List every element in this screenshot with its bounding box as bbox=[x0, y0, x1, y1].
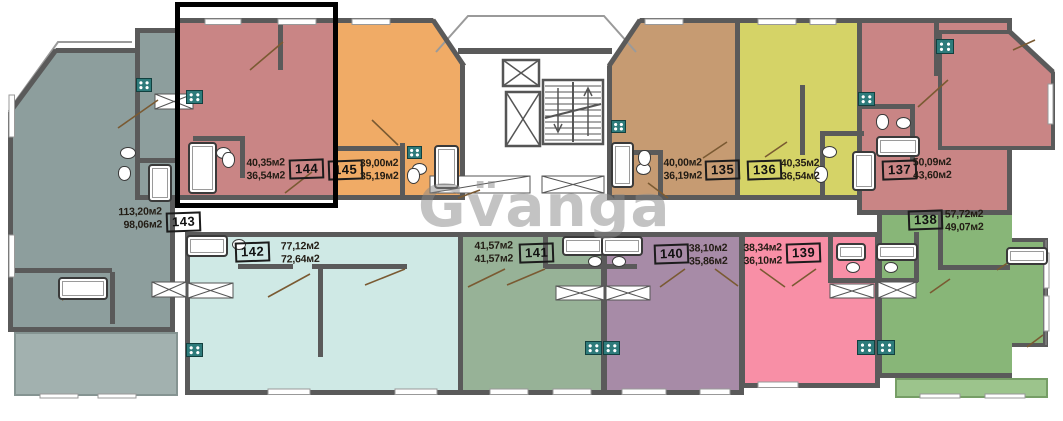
stove-icon bbox=[585, 341, 602, 355]
sink-icon bbox=[120, 147, 136, 159]
floor-plan: 143 144 145 135 136 137 142 141 140 139 … bbox=[0, 0, 1063, 421]
bathtub-icon bbox=[186, 235, 228, 257]
partition bbox=[333, 146, 403, 151]
partition bbox=[10, 268, 112, 273]
unit-label-143: 113,20м2 98,06м2 bbox=[98, 205, 162, 232]
unit-label-145: 39,00м2 35,19м2 bbox=[360, 156, 424, 183]
stove-icon bbox=[936, 39, 954, 54]
elevator-shafts bbox=[503, 60, 540, 146]
unit-stamp-140: 140 bbox=[654, 243, 690, 265]
staircase bbox=[543, 80, 603, 144]
area-total: 113,20м2 bbox=[98, 205, 162, 219]
bathtub-icon bbox=[876, 243, 918, 261]
area-total: 41,57м2 bbox=[449, 239, 513, 253]
bathtub-icon bbox=[1006, 247, 1048, 265]
unit-label-136: 40,35м2 36,54м2 bbox=[781, 156, 845, 183]
unit-stamp-138: 138 bbox=[908, 209, 944, 231]
area-total: 39,00м2 bbox=[360, 156, 424, 170]
unit-label-139: 38,34м2 36,10м2 bbox=[718, 241, 782, 268]
unit-138-area bbox=[877, 210, 1048, 378]
bathtub-icon bbox=[876, 136, 920, 157]
stove-icon bbox=[603, 341, 620, 355]
bathtub-icon bbox=[852, 151, 876, 191]
partition bbox=[940, 265, 1010, 270]
unit-label-137: 50,09м2 43,60м2 bbox=[913, 155, 977, 182]
partition bbox=[318, 269, 323, 357]
area-living: 72,64м2 bbox=[281, 253, 345, 267]
unit-stamp-142: 142 bbox=[235, 241, 271, 263]
stove-icon bbox=[186, 343, 203, 357]
area-living: 36,54м2 bbox=[781, 170, 845, 184]
sink-icon bbox=[612, 256, 626, 267]
toilet-icon bbox=[118, 166, 131, 181]
stove-icon bbox=[611, 120, 626, 133]
unit-143-balcony bbox=[14, 332, 178, 396]
watermark: Gv̈anga bbox=[418, 172, 671, 240]
unit-stamp-139: 139 bbox=[786, 242, 822, 264]
sink-icon bbox=[588, 256, 602, 267]
area-total: 38,34м2 bbox=[718, 241, 782, 255]
unit-label-138: 57,72м2 49,07м2 bbox=[945, 207, 1009, 234]
stove-icon bbox=[877, 340, 895, 355]
core-top-wall bbox=[458, 48, 612, 54]
area-living: 41,57м2 bbox=[449, 253, 513, 267]
area-living: 36,10м2 bbox=[718, 255, 782, 269]
area-total: 50,09м2 bbox=[913, 155, 977, 169]
unit-stamp-141: 141 bbox=[519, 242, 555, 264]
bathtub-icon bbox=[58, 277, 108, 300]
area-living: 98,06м2 bbox=[98, 219, 162, 233]
sink-icon bbox=[896, 117, 911, 129]
area-living: 35,19м2 bbox=[360, 170, 424, 184]
partition bbox=[820, 131, 864, 136]
sink-icon bbox=[846, 262, 860, 273]
toilet-icon bbox=[876, 114, 889, 130]
area-living: 43,60м2 bbox=[913, 169, 977, 183]
area-total: 40,00м2 bbox=[638, 156, 702, 170]
partition bbox=[110, 272, 115, 324]
unit-137-balcony bbox=[938, 30, 1055, 150]
unit-stamp-143: 143 bbox=[166, 211, 202, 233]
unit-label-141: 41,57м2 41,57м2 bbox=[449, 239, 513, 266]
partition bbox=[828, 232, 833, 282]
area-total: 57,72м2 bbox=[945, 207, 1009, 221]
bathtub-icon bbox=[148, 164, 172, 202]
area-total: 77,12м2 bbox=[281, 239, 345, 253]
stove-icon bbox=[857, 340, 875, 355]
unit-138-balcony bbox=[895, 378, 1048, 398]
unit-stamp-135: 135 bbox=[705, 159, 741, 181]
area-total: 40,35м2 bbox=[781, 156, 845, 170]
sink-icon bbox=[884, 262, 898, 273]
highlight-rectangle bbox=[175, 2, 338, 208]
area-living: 49,07м2 bbox=[945, 221, 1009, 235]
stove-icon bbox=[136, 78, 152, 92]
unit-stamp-136: 136 bbox=[747, 159, 783, 181]
unit-label-142: 77,12м2 72,64м2 bbox=[281, 239, 345, 266]
partition bbox=[800, 85, 805, 155]
bathtub-icon bbox=[836, 243, 866, 261]
stove-icon bbox=[858, 92, 875, 106]
partition bbox=[138, 158, 178, 163]
partition bbox=[828, 278, 918, 283]
